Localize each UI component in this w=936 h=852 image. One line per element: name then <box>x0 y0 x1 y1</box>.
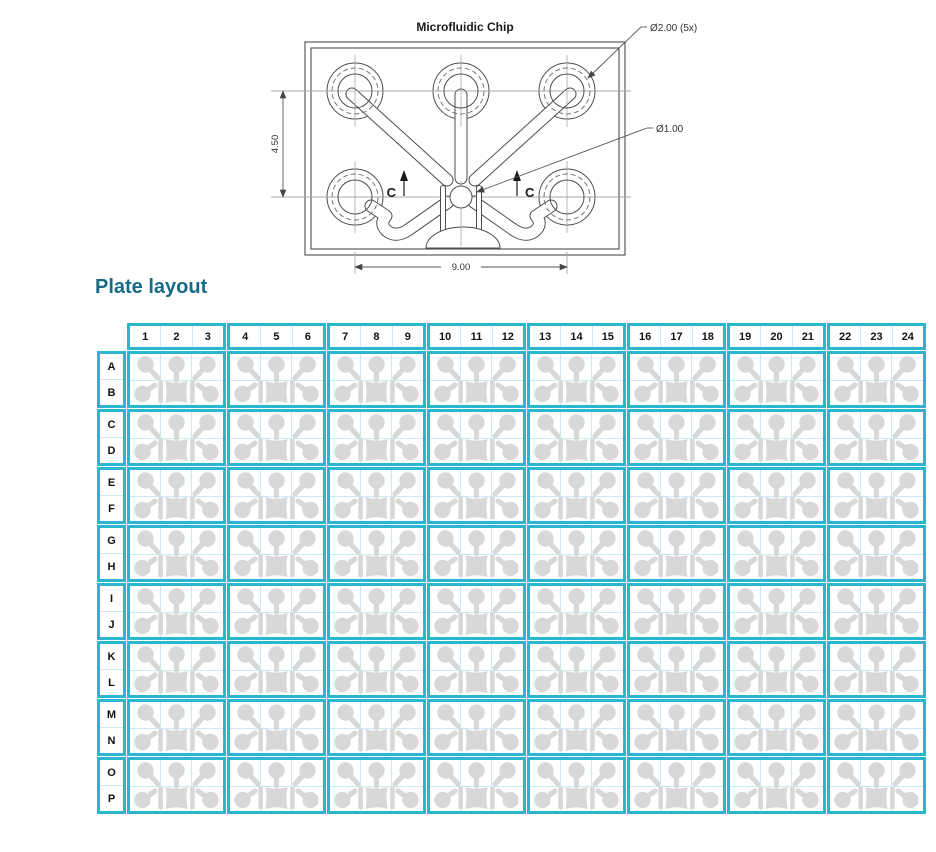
chip-block <box>527 583 626 640</box>
row-label: E <box>100 470 123 496</box>
column-header: 12 <box>493 326 523 347</box>
chip-glyph <box>830 760 923 811</box>
chip-block <box>327 699 426 756</box>
chip-block <box>427 641 526 698</box>
chip-glyph <box>830 528 923 579</box>
column-header: 22 <box>830 326 861 347</box>
chip-block <box>827 467 926 524</box>
chip-glyph <box>230 644 323 695</box>
chip-block <box>327 525 426 582</box>
column-header: 20 <box>761 326 792 347</box>
chip-block <box>627 467 726 524</box>
chip-glyph <box>730 470 823 521</box>
chip-glyph <box>130 702 223 753</box>
chip-block <box>727 641 826 698</box>
chip-block <box>227 699 326 756</box>
column-header: 10 <box>430 326 461 347</box>
chip-block <box>827 583 926 640</box>
chip-glyph <box>330 760 423 811</box>
chip-block <box>127 409 226 466</box>
row-label: I <box>100 586 123 612</box>
chip-block <box>827 699 926 756</box>
column-header: 3 <box>193 326 223 347</box>
chip-block <box>427 757 526 814</box>
chip-glyph <box>630 470 723 521</box>
row-label: L <box>100 670 123 695</box>
chip-glyph <box>830 470 923 521</box>
chip-glyph <box>330 412 423 463</box>
chip-block <box>127 641 226 698</box>
chip-glyph <box>530 470 623 521</box>
chip-glyph <box>330 470 423 521</box>
chip-glyph <box>630 702 723 753</box>
chip-block <box>127 757 226 814</box>
chip-glyph <box>430 702 523 753</box>
column-header: 17 <box>661 326 692 347</box>
row-label: H <box>100 554 123 579</box>
chip-block <box>427 351 526 408</box>
svg-text:C: C <box>525 185 535 200</box>
chip-block <box>127 351 226 408</box>
chip-glyph <box>530 760 623 811</box>
chip-glyph <box>430 412 523 463</box>
row-label-block: KL <box>97 641 126 698</box>
center-port-circle <box>450 186 472 208</box>
port-diameter-label: Ø2.00 (5x) <box>650 23 697 34</box>
chip-block <box>527 641 626 698</box>
chip-glyph <box>730 412 823 463</box>
chip-block <box>627 583 726 640</box>
column-header: 16 <box>630 326 661 347</box>
row-label: K <box>100 644 123 670</box>
chip-block <box>127 699 226 756</box>
chip-glyph <box>630 354 723 405</box>
chip-glyph <box>830 586 923 637</box>
dome-vent <box>426 227 500 248</box>
column-header-block: 456 <box>227 323 326 350</box>
column-header-block: 101112 <box>427 323 526 350</box>
chip-block <box>327 351 426 408</box>
row-label: O <box>100 760 123 786</box>
chip-block <box>427 467 526 524</box>
chip-block <box>727 699 826 756</box>
chip-block <box>427 699 526 756</box>
row-label-block: IJ <box>97 583 126 640</box>
dimension-vertical-label: 4.50 <box>270 135 281 154</box>
column-header: 21 <box>793 326 823 347</box>
chip-block <box>327 409 426 466</box>
chip-block <box>727 409 826 466</box>
column-header: 18 <box>693 326 723 347</box>
chip-glyph <box>330 528 423 579</box>
chip-glyph <box>730 528 823 579</box>
chip-block <box>327 467 426 524</box>
column-header: 1 <box>130 326 161 347</box>
chip-glyph <box>230 586 323 637</box>
chip-glyph <box>530 354 623 405</box>
chip-glyph <box>330 644 423 695</box>
chip-glyph <box>430 760 523 811</box>
column-header: 13 <box>530 326 561 347</box>
corner-spacer <box>97 323 126 350</box>
chip-glyph <box>530 528 623 579</box>
chip-block <box>527 757 626 814</box>
chip-glyph <box>530 644 623 695</box>
chip-block <box>627 641 726 698</box>
column-header-block: 222324 <box>827 323 926 350</box>
chip-block <box>527 525 626 582</box>
chip-glyph <box>530 586 623 637</box>
chip-block <box>827 409 926 466</box>
svg-text:C: C <box>387 185 397 200</box>
row-label: J <box>100 612 123 637</box>
column-header-block: 131415 <box>527 323 626 350</box>
column-header: 4 <box>230 326 261 347</box>
chip-glyph <box>430 586 523 637</box>
chip-block <box>227 583 326 640</box>
plate-grid: 123456789101112131415161718192021222324A… <box>97 323 926 814</box>
chip-block <box>227 641 326 698</box>
chip-block <box>727 583 826 640</box>
row-label: F <box>100 496 123 521</box>
chip-glyph <box>230 412 323 463</box>
row-label-block: GH <box>97 525 126 582</box>
chip-glyph <box>330 702 423 753</box>
chip-block <box>827 525 926 582</box>
plate-layout-heading: Plate layout <box>95 276 207 299</box>
row-label: A <box>100 354 123 380</box>
chip-block <box>627 351 726 408</box>
chip-glyph <box>530 702 623 753</box>
chip-block <box>827 641 926 698</box>
column-header-block: 123 <box>127 323 226 350</box>
chip-block <box>127 467 226 524</box>
chip-block <box>727 467 826 524</box>
chip-block <box>227 757 326 814</box>
row-label-block: CD <box>97 409 126 466</box>
column-header: 11 <box>461 326 492 347</box>
chip-glyph <box>630 412 723 463</box>
row-label: C <box>100 412 123 438</box>
chip-block <box>327 641 426 698</box>
row-label: G <box>100 528 123 554</box>
chip-block <box>527 351 626 408</box>
chip-block <box>427 409 526 466</box>
column-header: 6 <box>293 326 323 347</box>
chip-glyph <box>830 644 923 695</box>
column-header: 5 <box>261 326 292 347</box>
chip-glyph <box>130 354 223 405</box>
row-label: M <box>100 702 123 728</box>
chip-glyph <box>430 470 523 521</box>
column-header-block: 192021 <box>727 323 826 350</box>
chip-glyph <box>130 586 223 637</box>
chip-block <box>527 699 626 756</box>
chip-block <box>127 583 226 640</box>
chip-block <box>127 525 226 582</box>
chip-block <box>827 351 926 408</box>
chip-block <box>227 351 326 408</box>
chip-block <box>527 409 626 466</box>
chip-glyph <box>230 470 323 521</box>
chip-glyph <box>130 470 223 521</box>
chip-glyph <box>630 586 723 637</box>
chip-block <box>327 583 426 640</box>
chip-glyph <box>330 354 423 405</box>
row-label: N <box>100 728 123 753</box>
chip-glyph <box>230 354 323 405</box>
chip-glyph <box>630 644 723 695</box>
row-label: P <box>100 786 123 811</box>
chip-glyph <box>330 586 423 637</box>
chip-glyph <box>730 586 823 637</box>
chip-block <box>227 409 326 466</box>
drawing-title: Microfluidic Chip <box>416 20 513 34</box>
chip-glyph <box>830 702 923 753</box>
chip-block <box>627 699 726 756</box>
chip-glyph <box>230 702 323 753</box>
chip-glyph <box>830 354 923 405</box>
column-header: 23 <box>861 326 892 347</box>
chip-glyph <box>730 760 823 811</box>
column-header: 24 <box>893 326 923 347</box>
column-header: 8 <box>361 326 392 347</box>
chip-glyph <box>130 644 223 695</box>
chip-block <box>627 757 726 814</box>
row-label: D <box>100 438 123 463</box>
column-header: 14 <box>561 326 592 347</box>
chip-glyph <box>730 354 823 405</box>
chip-glyph <box>630 528 723 579</box>
row-label: B <box>100 380 123 405</box>
row-label-block: OP <box>97 757 126 814</box>
chip-block <box>527 467 626 524</box>
column-header: 15 <box>593 326 623 347</box>
chip-block <box>727 757 826 814</box>
row-label-block: MN <box>97 699 126 756</box>
chip-block <box>727 351 826 408</box>
chip-block <box>327 757 426 814</box>
chip-glyph <box>130 528 223 579</box>
chip-glyph <box>630 760 723 811</box>
chip-glyph <box>430 644 523 695</box>
column-header: 2 <box>161 326 192 347</box>
chip-block <box>827 757 926 814</box>
chip-glyph <box>130 412 223 463</box>
center-diameter-label: Ø1.00 <box>656 124 684 135</box>
chip-block <box>627 409 726 466</box>
column-header-block: 161718 <box>627 323 726 350</box>
column-header: 7 <box>330 326 361 347</box>
column-header-block: 789 <box>327 323 426 350</box>
chip-glyph <box>130 760 223 811</box>
chip-glyph <box>430 354 523 405</box>
chip-glyph <box>730 702 823 753</box>
row-label-block: EF <box>97 467 126 524</box>
dimension-horizontal-label: 9.00 <box>452 262 471 273</box>
chip-glyph <box>430 528 523 579</box>
chip-glyph <box>530 412 623 463</box>
column-header: 19 <box>730 326 761 347</box>
chip-glyph <box>830 412 923 463</box>
leader-port-diameter <box>588 27 647 78</box>
chip-technical-drawing: Microfluidic Chip <box>0 0 936 292</box>
chip-glyph <box>230 760 323 811</box>
chip-block <box>227 525 326 582</box>
column-header: 9 <box>393 326 423 347</box>
chip-block <box>427 583 526 640</box>
chip-block <box>627 525 726 582</box>
chip-block <box>427 525 526 582</box>
row-label-block: AB <box>97 351 126 408</box>
chip-block <box>227 467 326 524</box>
chip-glyph <box>230 528 323 579</box>
chip-block <box>727 525 826 582</box>
section-marker-left: C <box>387 170 408 200</box>
chip-glyph <box>730 644 823 695</box>
